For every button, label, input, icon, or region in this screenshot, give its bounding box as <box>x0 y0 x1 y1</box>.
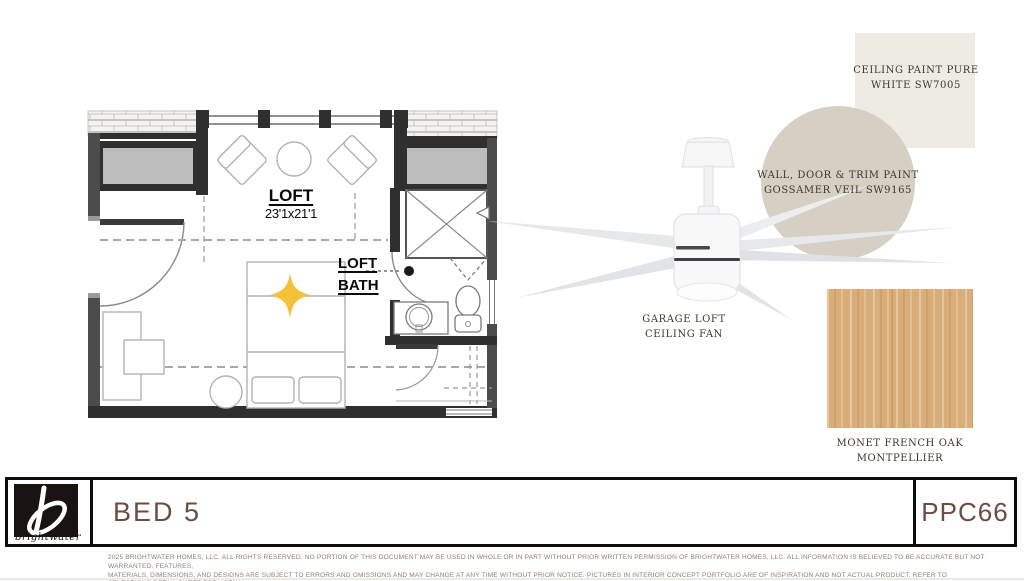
loft-room-label: LOFT <box>256 186 326 206</box>
loft-room-dimensions: 23'1x21'1 <box>246 206 336 221</box>
floor-plan <box>88 110 497 418</box>
legal-disclaimer: 2025 BRIGHTWATER HOMES, LLC. ALL RIGHTS … <box>108 554 988 581</box>
title-cell: BED 5 <box>93 480 913 544</box>
brightwater-logo-icon <box>14 484 78 537</box>
ceiling-fan-image <box>487 138 958 321</box>
legal-line-1: 2025 BRIGHTWATER HOMES, LLC. ALL RIGHTS … <box>108 554 988 572</box>
loft-bath-label: LOFT BATH <box>338 253 396 297</box>
title-block: brightwater BED 5 PPC66 <box>5 477 1017 547</box>
closet <box>396 344 492 404</box>
legal-line-2: MATERIALS, DIMENSIONS, AND DESIGNS ARE S… <box>108 572 988 581</box>
plan-code-cell: PPC66 <box>913 480 1014 544</box>
page-title: BED 5 <box>113 497 201 528</box>
fan-motor <box>674 138 740 302</box>
flooring-caption: MONET FRENCH OAK MONTPELLIER <box>818 436 982 466</box>
window-wall <box>196 110 408 128</box>
concept-board-page: LOFT 23'1x21'1 LOFT BATH CEILING PAINT P… <box>0 0 1024 581</box>
ceiling-fan-caption: GARAGE LOFT CEILING FAN <box>634 312 734 342</box>
wall-paint-caption: WALL, DOOR & TRIM PAINT GOSSAMER VEIL SW… <box>740 168 936 198</box>
entry-door <box>100 219 184 306</box>
ceiling-paint-caption: CEILING PAINT PURE WHITE SW7005 <box>836 63 996 93</box>
bath-fixtures <box>392 190 489 334</box>
brand-name-script: brightwater <box>8 532 88 543</box>
brand-logo-cell: brightwater <box>8 480 93 544</box>
plan-code: PPC66 <box>921 497 1008 528</box>
